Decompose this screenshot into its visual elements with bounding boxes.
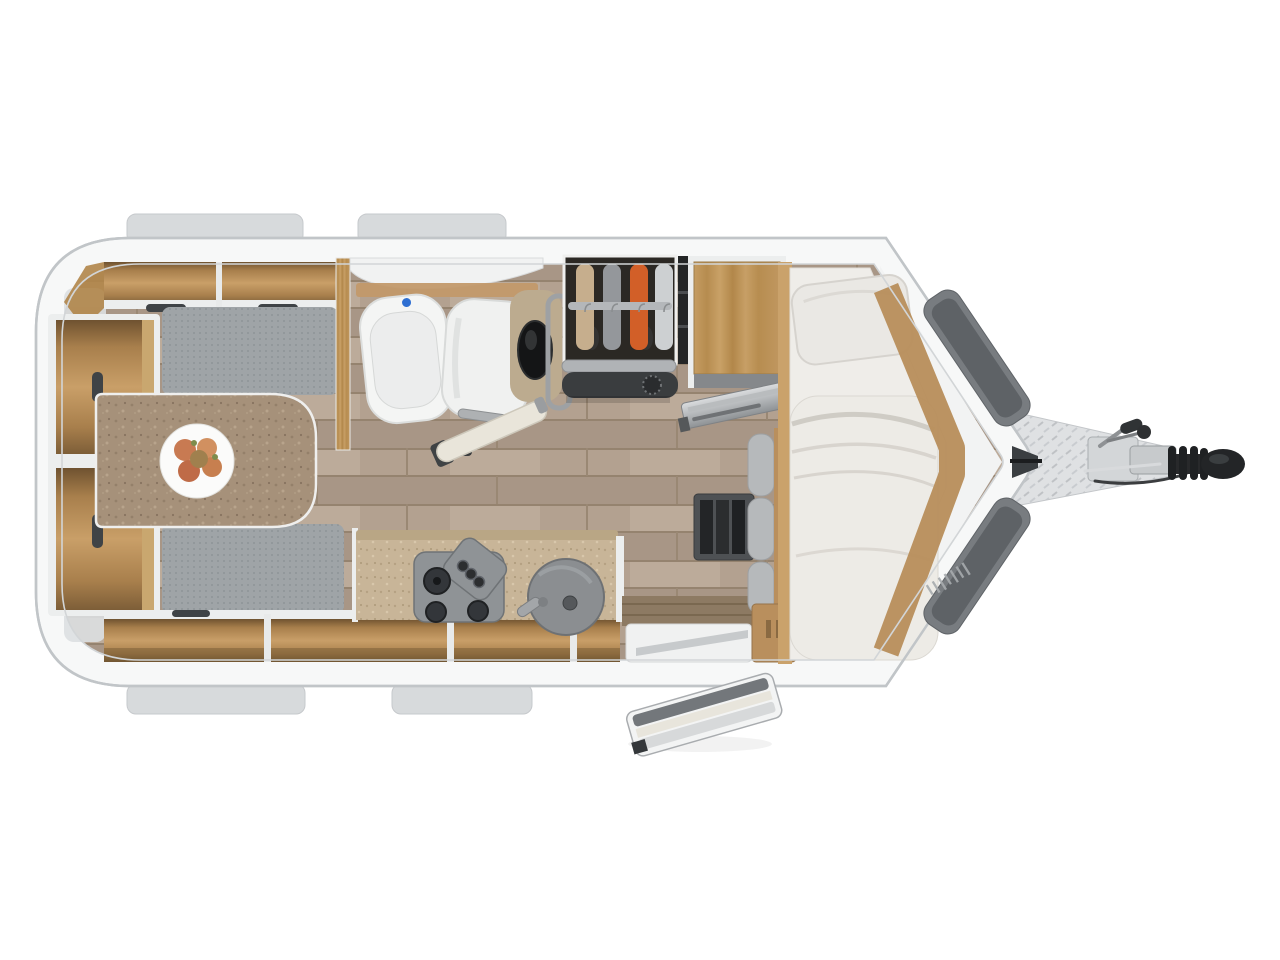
entry-step <box>626 624 752 662</box>
sink-drain-icon <box>563 596 577 610</box>
hob-burner-icon <box>468 601 488 621</box>
kitchen <box>352 528 624 635</box>
clothes-rail <box>568 302 672 310</box>
entry-area <box>622 596 752 662</box>
bed-side-shelf <box>694 494 754 560</box>
wardrobe <box>562 256 678 403</box>
caravan-floorplan-screenshot <box>0 0 1280 960</box>
caravan-floorplan-rendering <box>0 0 1280 960</box>
hob-burner-icon <box>426 602 446 622</box>
bed-duvet <box>790 396 938 660</box>
bench-seat-bottom <box>162 524 344 614</box>
heater-dial-icon <box>643 376 661 394</box>
heater-unit <box>562 372 678 403</box>
locker-latch <box>172 610 210 617</box>
bench-seat-top <box>162 307 338 395</box>
fridge-cabinet <box>675 256 794 432</box>
wardrobe-bottom-rail <box>562 360 676 372</box>
corner-vanity <box>510 290 562 402</box>
bed-side-pads <box>748 434 774 614</box>
coupling-head <box>1168 446 1245 480</box>
fruit-plate-icon <box>160 424 234 498</box>
toilet-icon <box>357 292 456 426</box>
dinette-table <box>96 394 316 527</box>
bathroom-partition-wall <box>336 258 350 450</box>
